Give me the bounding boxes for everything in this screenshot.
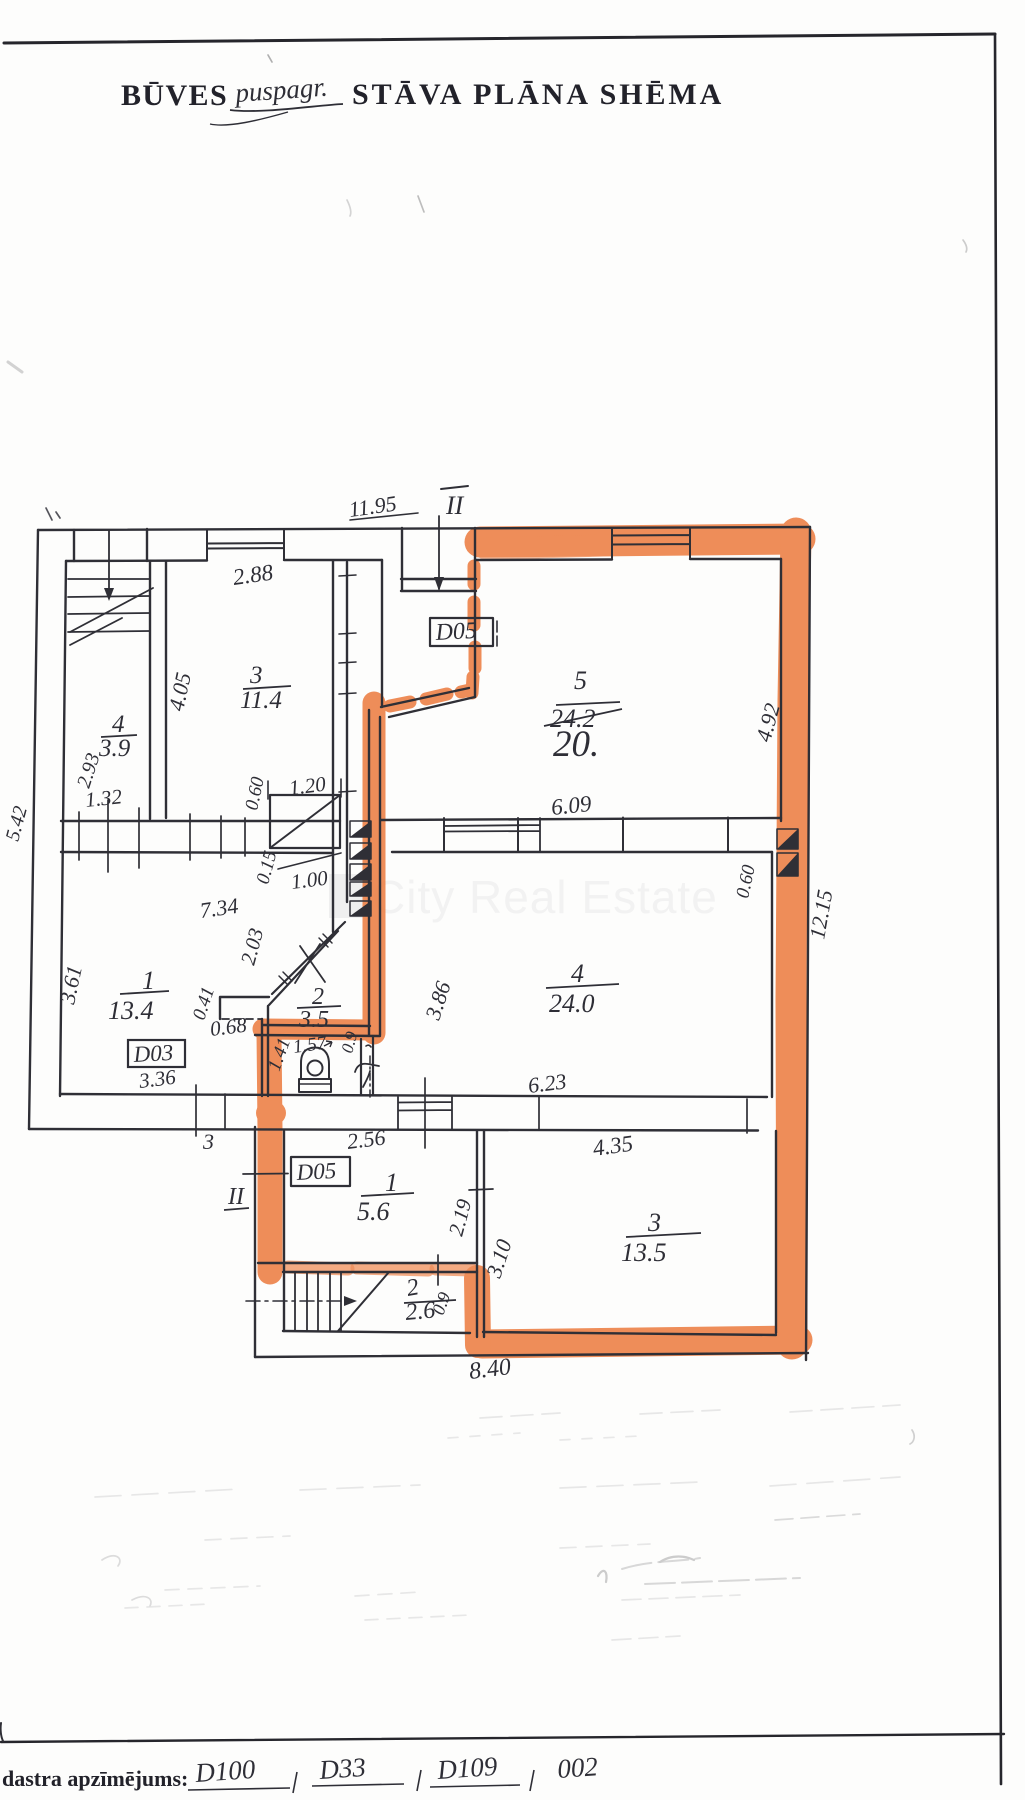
svg-text:13.4: 13.4 xyxy=(108,996,154,1025)
svg-text:6.23: 6.23 xyxy=(527,1068,568,1098)
svg-text:11.4: 11.4 xyxy=(240,687,282,714)
svg-text:D100: D100 xyxy=(193,1754,256,1788)
svg-text:1.20: 1.20 xyxy=(288,772,328,800)
svg-text:1.00: 1.00 xyxy=(290,866,330,894)
svg-text:20.: 20. xyxy=(553,724,599,765)
svg-text:13.5: 13.5 xyxy=(621,1238,667,1267)
svg-text:II: II xyxy=(445,491,465,520)
svg-text:1: 1 xyxy=(142,966,155,995)
svg-text:STĀVA PLĀNA SHĒMA: STĀVA PLĀNA SHĒMA xyxy=(352,78,724,111)
svg-text:7.34: 7.34 xyxy=(198,893,240,923)
svg-text:BŪVES: BŪVES xyxy=(121,79,228,112)
svg-text:dastra apzīmējums:: dastra apzīmējums: xyxy=(2,1766,188,1791)
svg-text:II: II xyxy=(227,1184,245,1210)
svg-text:2.56: 2.56 xyxy=(346,1124,387,1154)
svg-text:D33: D33 xyxy=(317,1752,366,1785)
svg-text:24.0: 24.0 xyxy=(549,989,595,1018)
svg-text:5.6: 5.6 xyxy=(357,1197,390,1226)
svg-text:3.36: 3.36 xyxy=(137,1065,178,1093)
svg-text:3: 3 xyxy=(202,1129,214,1154)
svg-text:1.32: 1.32 xyxy=(84,784,124,812)
svg-text:D05: D05 xyxy=(434,618,478,646)
svg-text:002: 002 xyxy=(556,1751,598,1784)
svg-text:1: 1 xyxy=(385,1168,398,1197)
svg-text:City Real Estate: City Real Estate xyxy=(372,871,718,923)
svg-text:D03: D03 xyxy=(132,1040,174,1067)
svg-text:8.40: 8.40 xyxy=(468,1354,513,1385)
svg-text:3.9: 3.9 xyxy=(98,735,131,762)
svg-text:D109: D109 xyxy=(435,1751,498,1785)
svg-text:4: 4 xyxy=(112,711,125,738)
svg-text:5: 5 xyxy=(574,666,587,695)
svg-text:4: 4 xyxy=(571,959,584,988)
svg-text:D05: D05 xyxy=(295,1158,337,1185)
svg-text:6.09: 6.09 xyxy=(550,791,593,820)
svg-text:3.5: 3.5 xyxy=(298,1007,329,1033)
svg-text:0.68: 0.68 xyxy=(209,1013,249,1041)
svg-text:3: 3 xyxy=(249,662,263,689)
svg-text:3: 3 xyxy=(647,1208,661,1237)
